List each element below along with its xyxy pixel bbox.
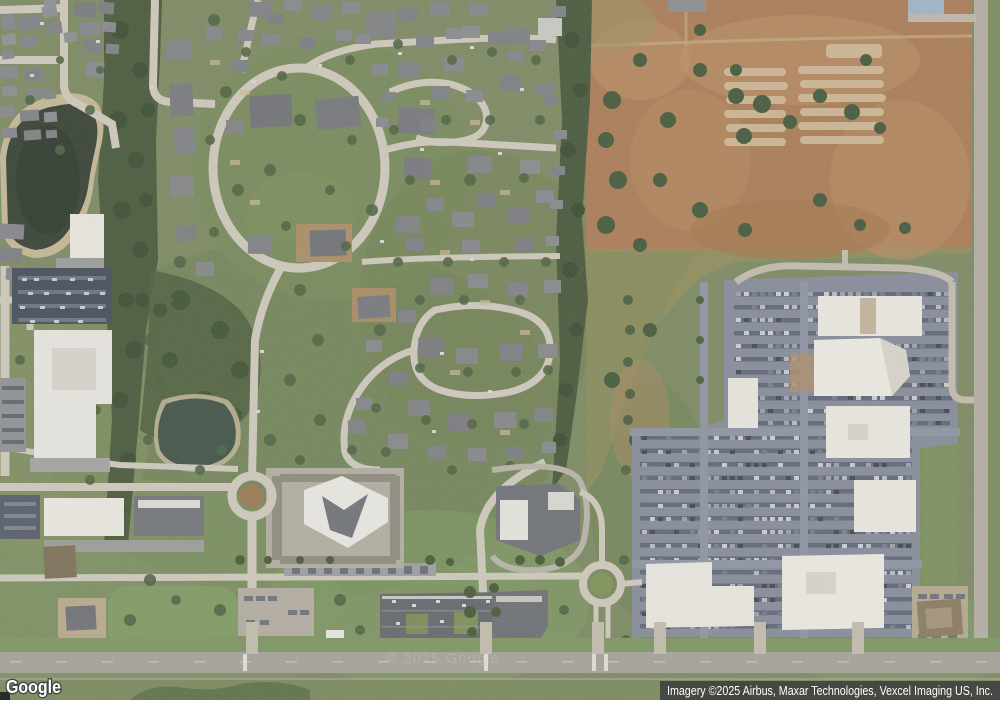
svg-text:Google: Google [6, 677, 61, 697]
svg-text:© 2025 Google: © 2025 Google [386, 650, 500, 667]
svg-text:Imagery ©2025 Airbus, Maxar Te: Imagery ©2025 Airbus, Maxar Technologies… [667, 683, 993, 698]
